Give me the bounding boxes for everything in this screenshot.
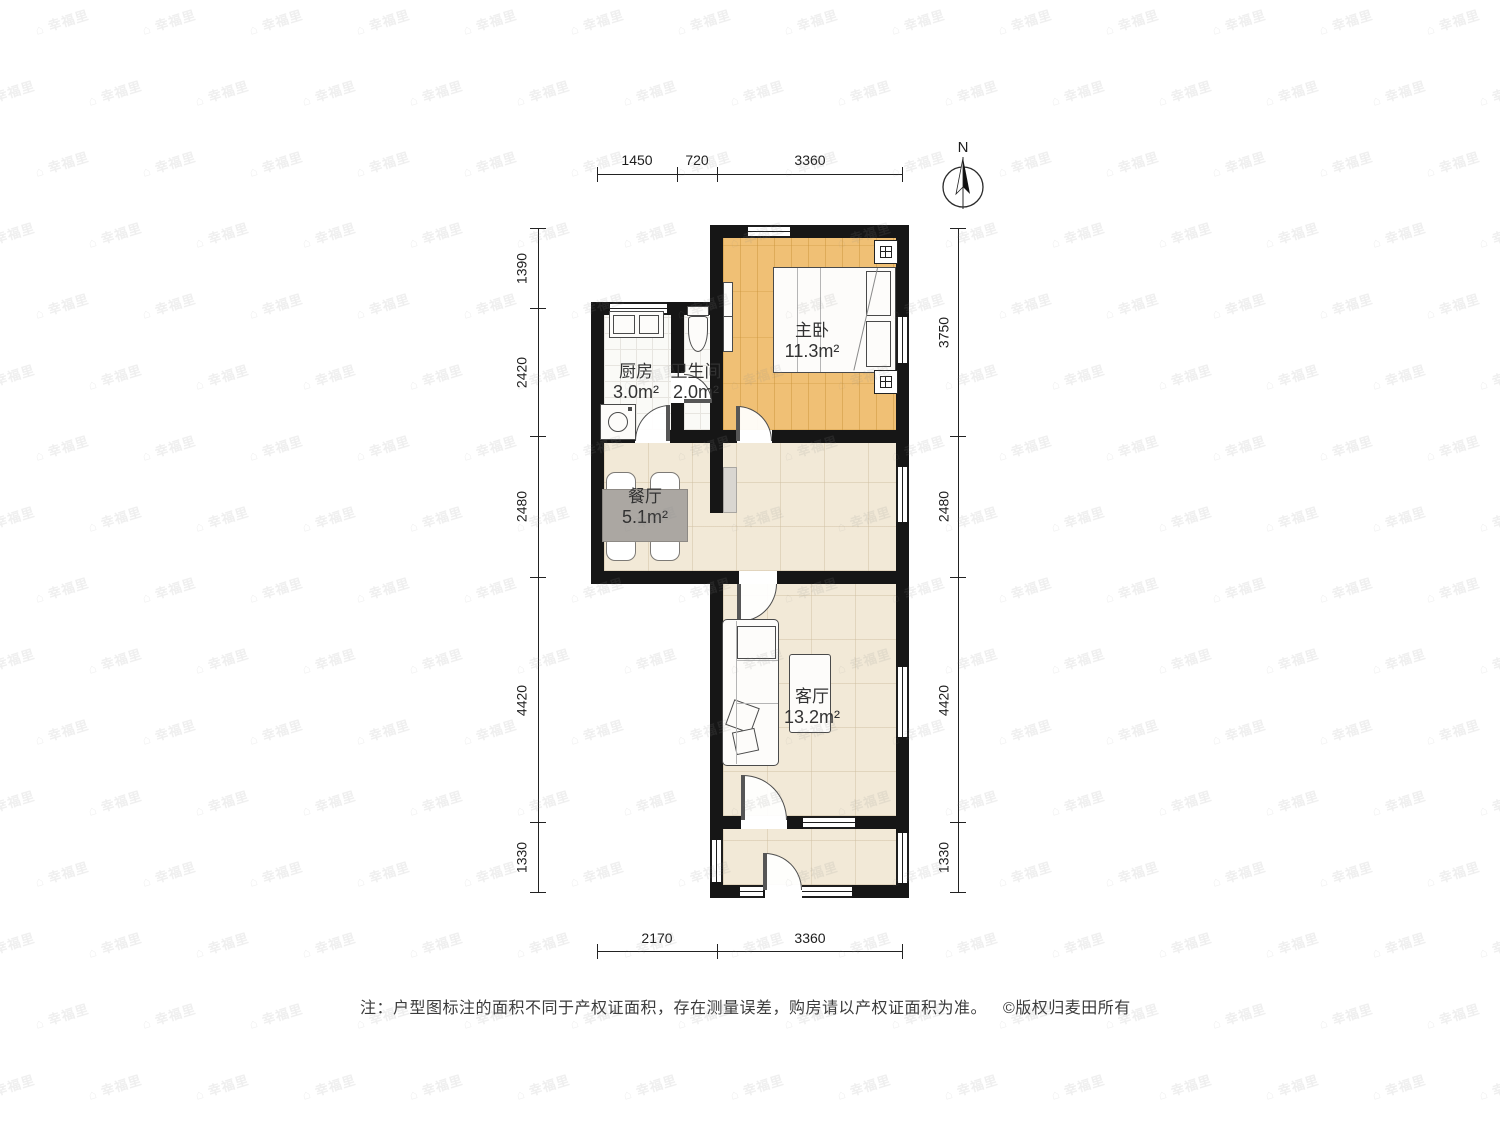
watermark: ⌂ 幸福里 <box>32 998 91 1032</box>
watermark: ⌂ 幸福里 <box>620 1069 679 1103</box>
watermark: ⌂ 幸福里 <box>1476 927 1500 961</box>
watermark: ⌂ 幸福里 <box>1476 501 1500 535</box>
dim-tick <box>950 577 966 578</box>
watermark: ⌂ 幸福里 <box>1209 146 1268 180</box>
wardrobe <box>723 282 733 352</box>
watermark: ⌂ 幸福里 <box>85 501 144 535</box>
dining-chair <box>650 540 680 561</box>
watermark: ⌂ 幸福里 <box>460 288 519 322</box>
window <box>896 317 909 363</box>
room-name: 餐厅 <box>585 486 705 507</box>
watermark: ⌂ 幸福里 <box>1048 643 1107 677</box>
watermark: ⌂ 幸福里 <box>1316 288 1375 322</box>
watermark: ⌂ 幸福里 <box>995 430 1054 464</box>
dim-tick <box>950 228 966 229</box>
watermark: ⌂ 幸福里 <box>1048 75 1107 109</box>
dim-tick <box>950 892 966 893</box>
watermark: ⌂ 幸福里 <box>192 359 251 393</box>
watermark: ⌂ 幸福里 <box>299 927 358 961</box>
watermark: ⌂ 幸福里 <box>1155 359 1214 393</box>
watermark: ⌂ 幸福里 <box>0 785 37 819</box>
watermark: ⌂ 幸福里 <box>781 4 840 38</box>
dim-tick <box>902 944 903 959</box>
watermark: ⌂ 幸福里 <box>727 927 786 961</box>
dim-label: 4420 <box>936 671 953 731</box>
watermark: ⌂ 幸福里 <box>1369 217 1428 251</box>
watermark: ⌂ 幸福里 <box>1369 75 1428 109</box>
watermark: ⌂ 幸福里 <box>406 359 465 393</box>
watermark: ⌂ 幸福里 <box>941 1069 1000 1103</box>
sofa-seat-line <box>737 660 778 661</box>
watermark: ⌂ 幸福里 <box>85 927 144 961</box>
watermark: ⌂ 幸福里 <box>1209 4 1268 38</box>
watermark: ⌂ 幸福里 <box>620 785 679 819</box>
watermark: ⌂ 幸福里 <box>460 856 519 890</box>
watermark: ⌂ 幸福里 <box>1316 146 1375 180</box>
dim-label: 1390 <box>514 239 531 299</box>
watermark: ⌂ 幸福里 <box>1369 785 1428 819</box>
watermark: ⌂ 幸福里 <box>192 501 251 535</box>
watermark: ⌂ 幸福里 <box>139 856 198 890</box>
dim-label: 2170 <box>627 930 687 947</box>
watermark: ⌂ 幸福里 <box>460 430 519 464</box>
dim-tick <box>717 944 718 959</box>
watermark: ⌂ 幸福里 <box>1102 4 1161 38</box>
window <box>896 833 909 883</box>
living-label: 客厅 13.2m² <box>752 686 872 728</box>
watermark: ⌂ 幸福里 <box>1155 643 1214 677</box>
watermark: ⌂ 幸福里 <box>620 75 679 109</box>
room-name: 客厅 <box>752 686 872 707</box>
disclaimer-text: 注：户型图标注的面积不同于产权证面积，存在测量误差，购房请以产权证面积为准。 <box>360 1000 987 1017</box>
watermark: ⌂ 幸福里 <box>1316 714 1375 748</box>
dining-chair <box>606 540 636 561</box>
watermark: ⌂ 幸福里 <box>299 217 358 251</box>
watermark: ⌂ 幸福里 <box>1209 714 1268 748</box>
watermark: ⌂ 幸福里 <box>32 4 91 38</box>
watermark: ⌂ 幸福里 <box>834 927 893 961</box>
watermark: ⌂ 幸福里 <box>620 643 679 677</box>
window <box>740 885 763 898</box>
watermark: ⌂ 幸福里 <box>85 785 144 819</box>
watermark: ⌂ 幸福里 <box>1209 572 1268 606</box>
toilet-tank <box>687 306 709 316</box>
dim-tick <box>530 892 546 893</box>
watermark: ⌂ 幸福里 <box>406 643 465 677</box>
balcony-door-leaf <box>763 853 767 890</box>
watermark: ⌂ 幸福里 <box>513 75 572 109</box>
dim-tick <box>530 308 546 309</box>
watermark: ⌂ 幸福里 <box>1369 359 1428 393</box>
watermark: ⌂ 幸福里 <box>1476 643 1500 677</box>
room-name: 主卧 <box>752 320 872 341</box>
watermark: ⌂ 幸福里 <box>941 785 1000 819</box>
watermark: ⌂ 幸福里 <box>513 927 572 961</box>
watermark: ⌂ 幸福里 <box>1048 1069 1107 1103</box>
ac-unit-icon <box>874 240 898 264</box>
watermark: ⌂ 幸福里 <box>1262 75 1321 109</box>
watermark: ⌂ 幸福里 <box>1316 4 1375 38</box>
living-door-leaf <box>741 775 745 820</box>
watermark: ⌂ 幸福里 <box>1423 146 1482 180</box>
watermark: ⌂ 幸福里 <box>1423 430 1482 464</box>
watermark: ⌂ 幸福里 <box>995 856 1054 890</box>
watermark: ⌂ 幸福里 <box>32 714 91 748</box>
watermark: ⌂ 幸福里 <box>1102 572 1161 606</box>
watermark: ⌂ 幸福里 <box>1155 927 1214 961</box>
watermark: ⌂ 幸福里 <box>1262 1069 1321 1103</box>
watermark: ⌂ 幸福里 <box>0 927 37 961</box>
watermark: ⌂ 幸福里 <box>995 4 1054 38</box>
watermark: ⌂ 幸福里 <box>353 146 412 180</box>
watermark: ⌂ 幸福里 <box>567 856 626 890</box>
watermark: ⌂ 幸福里 <box>995 714 1054 748</box>
watermark: ⌂ 幸福里 <box>246 572 305 606</box>
watermark: ⌂ 幸福里 <box>1048 359 1107 393</box>
watermark: ⌂ 幸福里 <box>299 643 358 677</box>
watermark: ⌂ 幸福里 <box>1155 217 1214 251</box>
hallway-cabinet <box>723 467 737 513</box>
pillow <box>866 271 891 316</box>
watermark: ⌂ 幸福里 <box>246 714 305 748</box>
watermark: ⌂ 幸福里 <box>32 430 91 464</box>
window <box>803 816 855 829</box>
footer-note: 注：户型图标注的面积不同于产权证面积，存在测量误差，购房请以产权证面积为准。©版… <box>360 994 1131 1018</box>
watermark: ⌂ 幸福里 <box>1262 927 1321 961</box>
watermark: ⌂ 幸福里 <box>406 501 465 535</box>
watermark: ⌂ 幸福里 <box>1476 217 1500 251</box>
watermark: ⌂ 幸福里 <box>246 146 305 180</box>
watermark: ⌂ 幸福里 <box>1476 75 1500 109</box>
watermark: ⌂ 幸福里 <box>139 714 198 748</box>
watermark: ⌂ 幸福里 <box>1102 288 1161 322</box>
watermark: ⌂ 幸福里 <box>1423 998 1482 1032</box>
dim-tick <box>950 822 966 823</box>
watermark: ⌂ 幸福里 <box>1423 572 1482 606</box>
dim-tick <box>597 944 598 959</box>
watermark: ⌂ 幸福里 <box>513 785 572 819</box>
room-area: 5.1m² <box>585 507 705 528</box>
door-opening <box>739 571 777 584</box>
watermark: ⌂ 幸福里 <box>1423 4 1482 38</box>
dimension-line-top <box>597 174 903 175</box>
room-area: 2.0m² <box>636 382 756 403</box>
watermark: ⌂ 幸福里 <box>1369 1069 1428 1103</box>
room-area: 13.2m² <box>752 707 872 728</box>
watermark: ⌂ 幸福里 <box>1155 501 1214 535</box>
watermark: ⌂ 幸福里 <box>299 359 358 393</box>
watermark: ⌂ 幸福里 <box>1423 714 1482 748</box>
watermark: ⌂ 幸福里 <box>834 75 893 109</box>
watermark: ⌂ 幸福里 <box>353 430 412 464</box>
watermark: ⌂ 幸福里 <box>460 146 519 180</box>
watermark: ⌂ 幸福里 <box>32 146 91 180</box>
compass-north-label: N <box>958 139 969 156</box>
dim-label: 720 <box>667 152 727 169</box>
dim-tick <box>597 167 598 182</box>
watermark: ⌂ 幸福里 <box>995 146 1054 180</box>
watermark: ⌂ 幸福里 <box>620 217 679 251</box>
watermark: ⌂ 幸福里 <box>1102 146 1161 180</box>
watermark: ⌂ 幸福里 <box>0 217 37 251</box>
bathroom-label: 卫生间 2.0m² <box>636 361 756 403</box>
watermark: ⌂ 幸福里 <box>1102 430 1161 464</box>
watermark: ⌂ 幸福里 <box>0 1069 37 1103</box>
wall <box>710 225 723 443</box>
watermark: ⌂ 幸福里 <box>192 785 251 819</box>
watermark: ⌂ 幸福里 <box>0 501 37 535</box>
watermark: ⌂ 幸福里 <box>1209 288 1268 322</box>
watermark: ⌂ 幸福里 <box>353 4 412 38</box>
dim-tick <box>530 577 546 578</box>
dim-label: 1450 <box>607 152 667 169</box>
watermark: ⌂ 幸福里 <box>299 1069 358 1103</box>
watermark: ⌂ 幸福里 <box>674 4 733 38</box>
dim-tick <box>530 228 546 229</box>
watermark: ⌂ 幸福里 <box>406 1069 465 1103</box>
watermark: ⌂ 幸福里 <box>406 75 465 109</box>
dim-label: 2420 <box>514 343 531 403</box>
window <box>748 225 790 238</box>
watermark: ⌂ 幸福里 <box>1316 430 1375 464</box>
watermark: ⌂ 幸福里 <box>460 714 519 748</box>
watermark: ⌂ 幸福里 <box>567 4 626 38</box>
dim-tick <box>530 436 546 437</box>
copyright-text: ©版权归麦田所有 <box>1003 1000 1131 1017</box>
watermark: ⌂ 幸福里 <box>941 75 1000 109</box>
north-compass-icon: N <box>936 136 990 214</box>
watermark: ⌂ 幸福里 <box>299 75 358 109</box>
watermark: ⌂ 幸福里 <box>727 75 786 109</box>
watermark: ⌂ 幸福里 <box>32 856 91 890</box>
watermark: ⌂ 幸福里 <box>139 572 198 606</box>
dining-label: 餐厅 5.1m² <box>585 486 705 528</box>
dim-tick <box>950 436 966 437</box>
washing-machine-door <box>608 412 628 432</box>
ac-unit-icon <box>874 370 898 394</box>
watermark: ⌂ 幸福里 <box>567 714 626 748</box>
watermark: ⌂ 幸福里 <box>192 1069 251 1103</box>
sofa-back-line <box>736 621 737 764</box>
watermark: ⌂ 幸福里 <box>995 572 1054 606</box>
dim-label: 1330 <box>936 828 953 888</box>
dim-label: 4420 <box>514 671 531 731</box>
watermark: ⌂ 幸福里 <box>941 359 1000 393</box>
watermark: ⌂ 幸福里 <box>888 4 947 38</box>
dim-label: 3360 <box>780 930 840 947</box>
wall <box>710 225 909 238</box>
watermark: ⌂ 幸福里 <box>85 75 144 109</box>
dim-label: 3750 <box>936 303 953 363</box>
watermark: ⌂ 幸福里 <box>1476 359 1500 393</box>
watermark: ⌂ 幸福里 <box>995 288 1054 322</box>
watermark: ⌂ 幸福里 <box>1262 643 1321 677</box>
watermark: ⌂ 幸福里 <box>513 1069 572 1103</box>
watermark: ⌂ 幸福里 <box>1209 430 1268 464</box>
watermark: ⌂ 幸福里 <box>0 643 37 677</box>
washer-knob <box>628 407 632 411</box>
room-area: 11.3m² <box>752 341 872 362</box>
watermark: ⌂ 幸福里 <box>1102 856 1161 890</box>
watermark: ⌂ 幸福里 <box>353 572 412 606</box>
watermark: ⌂ 幸福里 <box>1316 856 1375 890</box>
watermark: ⌂ 幸福里 <box>353 856 412 890</box>
window <box>802 885 852 898</box>
dimension-line-right <box>958 228 959 892</box>
room-name: 卫生间 <box>636 361 756 382</box>
watermark: ⌂ 幸福里 <box>246 4 305 38</box>
watermark: ⌂ 幸福里 <box>1369 927 1428 961</box>
watermark: ⌂ 幸福里 <box>460 572 519 606</box>
watermark: ⌂ 幸福里 <box>1155 1069 1214 1103</box>
watermark: ⌂ 幸福里 <box>727 1069 786 1103</box>
watermark: ⌂ 幸福里 <box>85 643 144 677</box>
kitchen-door-leaf <box>666 405 670 441</box>
watermark: ⌂ 幸福里 <box>1209 856 1268 890</box>
watermark: ⌂ 幸福里 <box>1369 501 1428 535</box>
watermark: ⌂ 幸福里 <box>246 998 305 1032</box>
watermark: ⌂ 幸福里 <box>1262 359 1321 393</box>
watermark: ⌂ 幸福里 <box>1262 501 1321 535</box>
watermark: ⌂ 幸福里 <box>406 785 465 819</box>
window <box>896 667 909 737</box>
dim-label: 3360 <box>780 152 840 169</box>
watermark: ⌂ 幸福里 <box>460 4 519 38</box>
watermark: ⌂ 幸福里 <box>1048 217 1107 251</box>
dining-door-leaf <box>737 584 741 622</box>
dim-label: 1330 <box>514 828 531 888</box>
watermark: ⌂ 幸福里 <box>941 927 1000 961</box>
dim-tick <box>717 167 718 182</box>
watermark: ⌂ 幸福里 <box>1423 856 1482 890</box>
watermark: ⌂ 幸福里 <box>1476 1069 1500 1103</box>
watermark: ⌂ 幸福里 <box>192 217 251 251</box>
balcony-floor <box>723 829 896 885</box>
watermark: ⌂ 幸福里 <box>85 217 144 251</box>
sofa-cushion <box>737 626 776 659</box>
window <box>896 467 909 522</box>
watermark: ⌂ 幸福里 <box>353 288 412 322</box>
watermark: ⌂ 幸福里 <box>0 75 37 109</box>
watermark: ⌂ 幸福里 <box>1209 998 1268 1032</box>
watermark: ⌂ 幸福里 <box>1476 785 1500 819</box>
watermark: ⌂ 幸福里 <box>0 359 37 393</box>
dimension-line-bottom <box>597 951 903 952</box>
watermark: ⌂ 幸福里 <box>299 501 358 535</box>
watermark: ⌂ 幸福里 <box>246 288 305 322</box>
sink-basin <box>639 315 659 334</box>
watermark: ⌂ 幸福里 <box>1048 501 1107 535</box>
watermark: ⌂ 幸福里 <box>834 1069 893 1103</box>
dim-tick <box>530 822 546 823</box>
watermark: ⌂ 幸福里 <box>192 75 251 109</box>
watermark: ⌂ 幸福里 <box>139 998 198 1032</box>
watermark: ⌂ 幸福里 <box>1262 785 1321 819</box>
floorplan-canvas: 主卧 11.3m² 厨房 3.0m² 卫生间 2.0m² 餐厅 5.1m² 客厅… <box>0 0 1500 1125</box>
watermark: ⌂ 幸福里 <box>139 146 198 180</box>
wall <box>710 443 723 513</box>
watermark: ⌂ 幸福里 <box>941 217 1000 251</box>
watermark: ⌂ 幸福里 <box>1155 75 1214 109</box>
watermark: ⌂ 幸福里 <box>1102 714 1161 748</box>
watermark: ⌂ 幸福里 <box>139 430 198 464</box>
window <box>710 840 723 882</box>
dim-label: 2480 <box>936 477 953 537</box>
watermark: ⌂ 幸福里 <box>139 4 198 38</box>
watermark: ⌂ 幸福里 <box>1369 643 1428 677</box>
wardrobe-divider <box>724 316 732 317</box>
watermark: ⌂ 幸福里 <box>1262 217 1321 251</box>
bedroom-door-leaf <box>736 406 740 441</box>
watermark: ⌂ 幸福里 <box>246 430 305 464</box>
watermark: ⌂ 幸福里 <box>1048 927 1107 961</box>
watermark: ⌂ 幸福里 <box>299 785 358 819</box>
dimension-line-left <box>538 228 539 892</box>
watermark: ⌂ 幸福里 <box>406 217 465 251</box>
watermark: ⌂ 幸福里 <box>1155 785 1214 819</box>
watermark: ⌂ 幸福里 <box>246 856 305 890</box>
watermark: ⌂ 幸福里 <box>85 1069 144 1103</box>
dim-tick <box>902 167 903 182</box>
sink-basin <box>613 315 635 334</box>
watermark: ⌂ 幸福里 <box>32 288 91 322</box>
watermark: ⌂ 幸福里 <box>32 572 91 606</box>
dim-tick <box>677 167 678 182</box>
watermark: ⌂ 幸福里 <box>85 359 144 393</box>
watermark: ⌂ 幸福里 <box>406 927 465 961</box>
watermark: ⌂ 幸福里 <box>1316 572 1375 606</box>
watermark: ⌂ 幸福里 <box>353 714 412 748</box>
dim-label: 2480 <box>514 477 531 537</box>
watermark: ⌂ 幸福里 <box>192 643 251 677</box>
watermark: ⌂ 幸福里 <box>1048 785 1107 819</box>
bedroom-label: 主卧 11.3m² <box>752 320 872 362</box>
watermark: ⌂ 幸福里 <box>139 288 198 322</box>
watermark: ⌂ 幸福里 <box>192 927 251 961</box>
watermark: ⌂ 幸福里 <box>1423 288 1482 322</box>
watermark: ⌂ 幸福里 <box>1316 998 1375 1032</box>
